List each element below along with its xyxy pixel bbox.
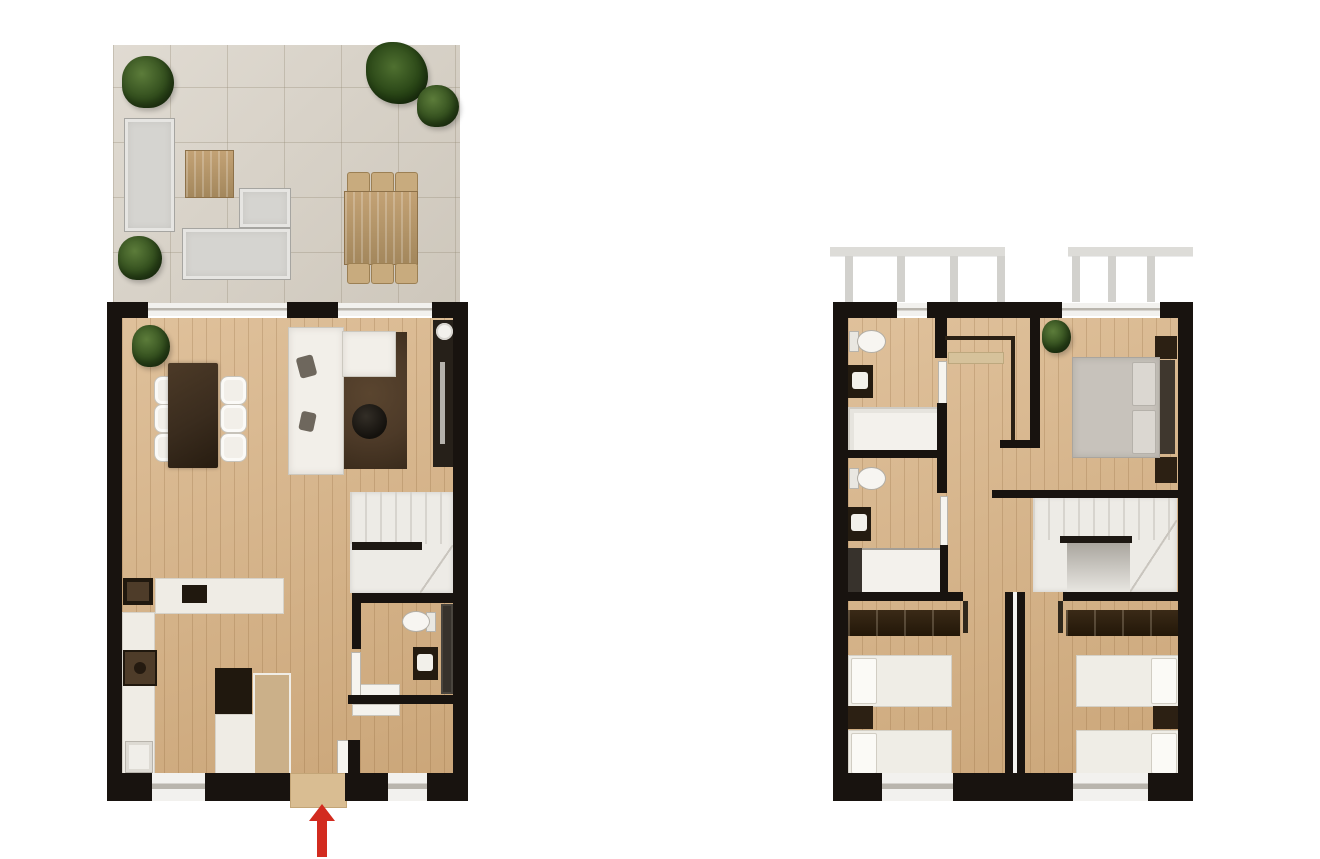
bedroom-plant-icon xyxy=(1042,320,1071,353)
washbasin xyxy=(852,372,868,389)
dining-chair xyxy=(220,376,247,405)
outdoor-chair xyxy=(371,263,394,284)
bedroom-door-leaf xyxy=(963,601,968,633)
wall xyxy=(287,302,338,318)
outdoor-chair xyxy=(347,172,370,193)
railing-post xyxy=(1108,256,1116,302)
outdoor-coffee-table xyxy=(185,150,234,198)
toilet-bowl xyxy=(402,611,430,632)
dining-table xyxy=(168,363,218,468)
washbasin xyxy=(417,654,433,671)
window xyxy=(388,773,427,801)
closet-partition xyxy=(1011,336,1015,443)
wc-door-leaf xyxy=(351,652,361,698)
wall xyxy=(927,302,1062,318)
wall xyxy=(427,773,468,801)
stair-lower-flight xyxy=(1067,543,1130,592)
outdoor-chair xyxy=(371,172,394,193)
tall-cabinet-lower xyxy=(215,714,254,774)
bathroom-door-leaf xyxy=(940,496,948,547)
window xyxy=(152,773,205,801)
cabinet-door xyxy=(253,673,291,777)
terrace-plant-icon xyxy=(122,56,174,108)
bathroom-wall xyxy=(848,592,963,601)
window xyxy=(897,303,927,316)
entrance-arrow-shaft xyxy=(317,820,327,857)
railing-post xyxy=(997,256,1005,302)
balcony-railing xyxy=(1068,247,1193,256)
window xyxy=(1073,773,1148,801)
wall xyxy=(205,773,290,801)
entrance-step xyxy=(290,773,347,808)
wall xyxy=(833,773,882,801)
nightstand xyxy=(1155,457,1177,483)
outdoor-chair xyxy=(347,263,370,284)
dining-chair xyxy=(220,433,247,462)
entrance-wall-stub xyxy=(348,740,360,780)
bed-pillow xyxy=(1151,733,1177,774)
bathroom-wall xyxy=(848,450,947,458)
first-floor-plan xyxy=(660,0,1320,859)
wall xyxy=(107,773,152,801)
bathroom-door-leaf xyxy=(938,361,947,405)
kitchen-island xyxy=(155,578,284,614)
outdoor-side-table xyxy=(239,188,291,228)
railing-post xyxy=(845,256,853,302)
wardrobe xyxy=(848,610,960,636)
bed-pillow xyxy=(851,733,877,774)
railing-post xyxy=(950,256,958,302)
nightstand xyxy=(848,706,873,729)
nightstand xyxy=(1153,706,1178,729)
bedroom-wall xyxy=(1030,318,1040,443)
stair-winder-line xyxy=(1130,520,1177,592)
wall xyxy=(453,302,468,801)
outdoor-sofa xyxy=(182,228,291,280)
tall-cabinet-upper xyxy=(215,668,252,714)
window xyxy=(882,773,953,801)
party-wall xyxy=(1005,592,1013,773)
railing-post xyxy=(897,256,905,302)
stair-treads xyxy=(350,492,453,544)
stair-winder-line xyxy=(420,545,453,593)
terrace-glass-door xyxy=(338,303,432,316)
outdoor-chair xyxy=(395,263,418,284)
toilet-bowl xyxy=(857,467,886,490)
single-bed xyxy=(1076,730,1180,777)
landing-wall xyxy=(992,490,1178,498)
bathroom-wall xyxy=(940,545,948,592)
bathroom-wall xyxy=(937,403,947,493)
outdoor-sofa xyxy=(124,118,175,232)
bedroom-door-leaf xyxy=(1058,601,1063,633)
railing-post xyxy=(1072,256,1080,302)
balcony-railing xyxy=(830,247,1005,256)
terrace-plant-icon xyxy=(118,236,162,280)
closet-partition xyxy=(945,336,1015,340)
entrance-arrow-icon xyxy=(309,804,335,821)
wc-wall xyxy=(352,593,453,603)
outdoor-dining-table xyxy=(344,191,418,265)
hall-bench xyxy=(352,704,400,716)
single-bed xyxy=(848,730,952,777)
wardrobe xyxy=(1066,610,1178,636)
bed-pillow xyxy=(1132,410,1156,454)
terrace-glass-door xyxy=(148,303,287,316)
window xyxy=(1062,303,1160,316)
shower xyxy=(848,548,945,597)
terrace-plant-icon xyxy=(417,85,459,127)
kitchen-sink xyxy=(123,650,157,686)
stair-railing xyxy=(352,542,422,550)
party-wall xyxy=(1017,592,1025,773)
wc-wall xyxy=(352,603,361,649)
hall-wall xyxy=(348,695,453,704)
bedroom-wall xyxy=(1000,440,1040,448)
wall xyxy=(1148,773,1193,801)
outdoor-chair xyxy=(395,172,418,193)
round-coffee-table xyxy=(352,404,387,439)
bed-pillow xyxy=(1151,658,1177,704)
wall xyxy=(107,302,122,801)
toilet-bowl xyxy=(857,330,886,353)
nightstand xyxy=(1155,336,1177,359)
wall xyxy=(953,773,1073,801)
railing-post xyxy=(1147,256,1155,302)
tv-screen xyxy=(440,362,445,444)
floor-plan-image xyxy=(0,0,1320,859)
floor-lamp-icon xyxy=(436,323,453,340)
single-bed xyxy=(1076,655,1180,707)
bedroom-wall xyxy=(1063,592,1178,601)
stair-railing xyxy=(1060,536,1132,543)
bed-pillow xyxy=(851,658,877,704)
shower-panel xyxy=(848,548,862,593)
dining-chair xyxy=(220,404,247,433)
wall xyxy=(833,302,848,801)
island-sink xyxy=(182,585,207,603)
single-bed xyxy=(848,655,952,707)
radiator-panel xyxy=(441,604,453,694)
ground-floor-plan xyxy=(0,0,660,859)
closet-bench xyxy=(948,352,1004,364)
bed-pillow xyxy=(1132,362,1156,406)
living-room-plant-icon xyxy=(132,325,170,367)
kitchen-corner-appliance-top xyxy=(127,582,149,601)
cooktop xyxy=(125,741,153,773)
washbasin xyxy=(851,514,867,531)
wall xyxy=(1178,302,1193,801)
corner-sofa xyxy=(288,327,344,475)
corner-sofa-chaise xyxy=(342,331,396,377)
